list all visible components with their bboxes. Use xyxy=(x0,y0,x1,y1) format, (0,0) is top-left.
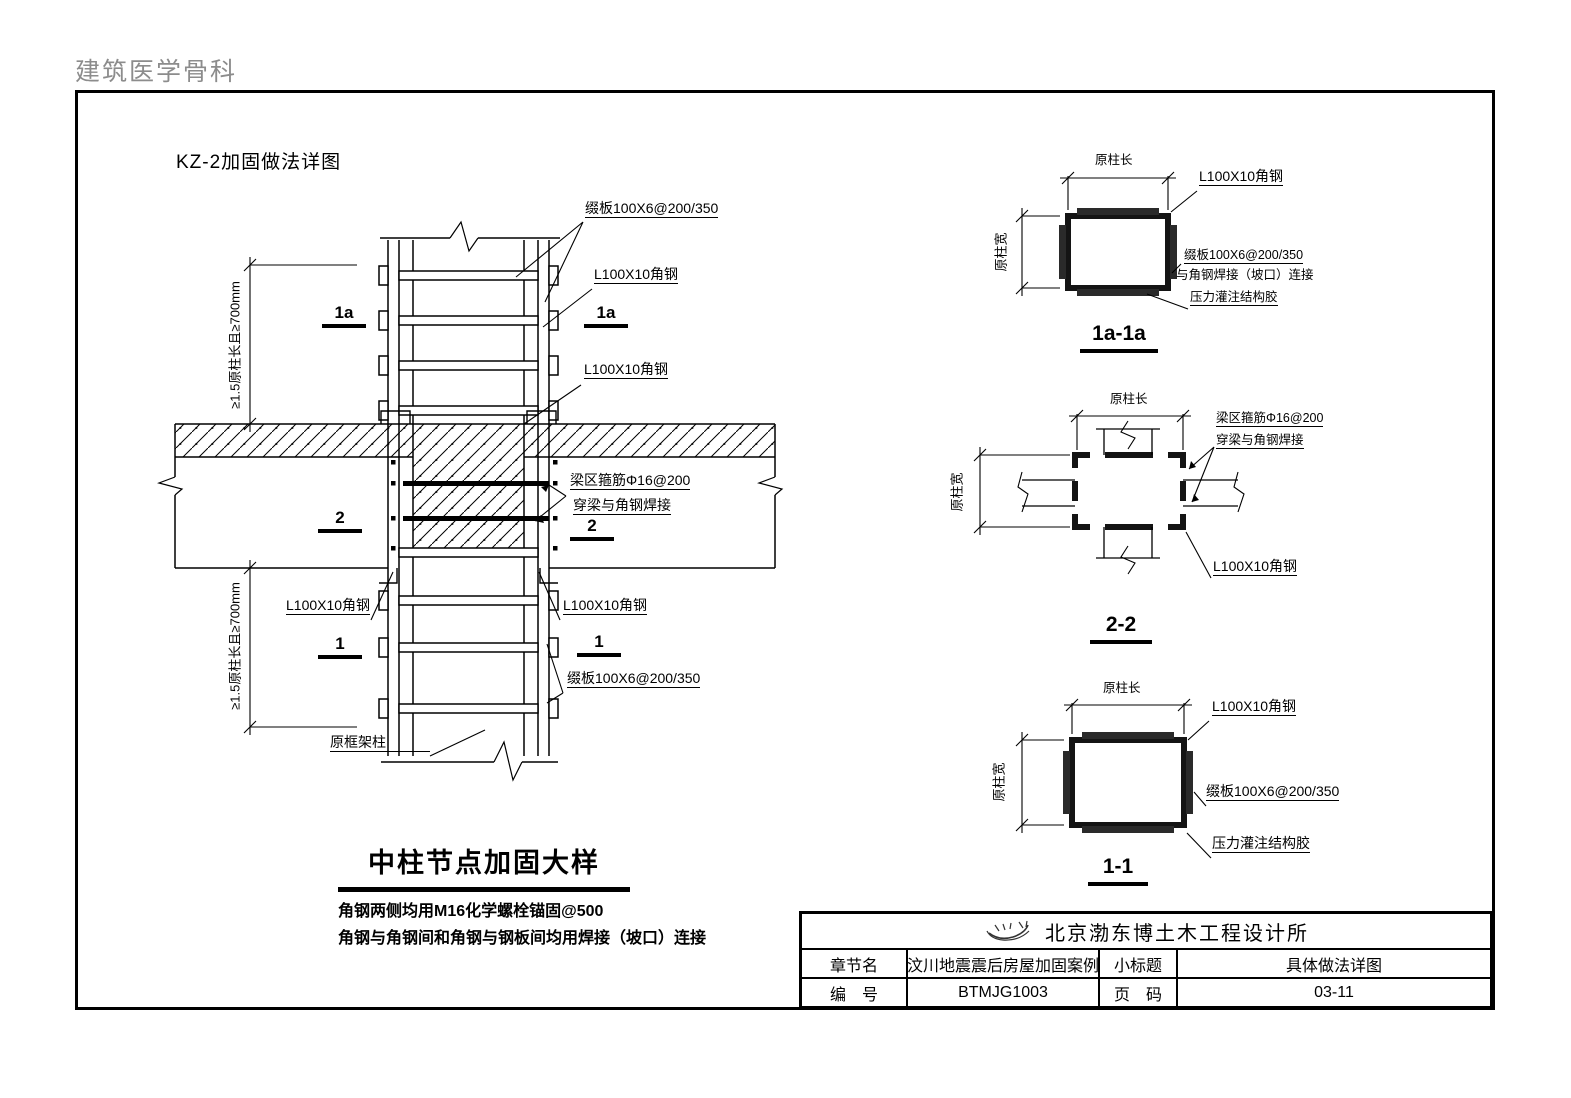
label-angle-below-right: L100X10角钢 xyxy=(563,597,647,615)
note-line-1: 角钢两侧均用M16化学螺栓锚固@500 xyxy=(338,898,706,925)
chapter-label: 章节名 xyxy=(802,950,906,977)
number-value: BTMJG1003 xyxy=(906,979,1098,1006)
title-block: 北京渤东博土木工程设计所 章节名 汶川地震震后房屋加固案例 小标题 具体做法详图… xyxy=(799,911,1493,1009)
page-value: 03-11 xyxy=(1176,979,1490,1006)
label-angle-top-right: L100X10角钢 xyxy=(594,266,678,284)
title-block-row-2: 编 号 BTMJG1003 页 码 03-11 xyxy=(802,977,1490,1006)
s1a-label-glue: 压力灌注结构胶 xyxy=(1190,290,1278,306)
s2-label-angle: L100X10角钢 xyxy=(1213,558,1297,576)
company-logo xyxy=(983,917,1035,945)
s1a-label-batten: 缀板100X6@200/350 xyxy=(1184,248,1303,264)
cut-marker-1a-left: 1a xyxy=(322,303,366,328)
section-title-1-1: 1-1 xyxy=(1088,855,1148,886)
subtitle-label: 小标题 xyxy=(1098,950,1176,977)
s1-label-angle: L100X10角钢 xyxy=(1212,698,1296,716)
s2-dim-top: 原柱长 xyxy=(1110,392,1148,406)
elevation-title-text: 中柱节点加固大样 xyxy=(338,841,630,880)
subtitle-value: 具体做法详图 xyxy=(1176,950,1490,977)
section-title-2-2: 2-2 xyxy=(1090,613,1152,644)
cut-marker-1-left: 1 xyxy=(318,634,362,659)
label-stirrup-line1: 梁区箍筋Φ16@200 xyxy=(570,472,690,490)
title-block-header: 北京渤东博土木工程设计所 xyxy=(802,914,1490,948)
s1-dim-left: 原柱宽 xyxy=(993,762,1008,801)
note-line-2: 角钢与角钢间和角钢与钢板间均用焊接（坡口）连接 xyxy=(338,925,706,952)
cut-marker-2-right: 2 xyxy=(570,516,614,541)
s2-dim-left: 原柱宽 xyxy=(951,472,966,511)
s1-label-glue: 压力灌注结构胶 xyxy=(1212,835,1310,853)
elevation-title: 中柱节点加固大样 xyxy=(338,841,630,892)
s1-label-batten: 缀板100X6@200/350 xyxy=(1206,783,1339,801)
chapter-value: 汶川地震震后房屋加固案例 xyxy=(906,950,1098,977)
cut-marker-2-left: 2 xyxy=(318,508,362,533)
label-angle-mid-right: L100X10角钢 xyxy=(584,361,668,379)
company-name: 北京渤东博土木工程设计所 xyxy=(1045,917,1309,946)
label-batten-bottom: 缀板100X6@200/350 xyxy=(567,670,700,688)
sheet-border xyxy=(75,90,1495,1010)
section-title-1a1a: 1a-1a xyxy=(1080,322,1158,353)
cut-marker-1-right: 1 xyxy=(577,632,621,657)
s2-label-stirrup2: 穿梁与角钢焊接 xyxy=(1216,433,1304,449)
elevation-title-underline xyxy=(338,887,630,892)
dim-lower-text: ≥1.5原柱长且≥700mm xyxy=(229,582,244,710)
title-block-row-1: 章节名 汶川地震震后房屋加固案例 小标题 具体做法详图 xyxy=(802,948,1490,977)
dim-upper-text: ≥1.5原柱长且≥700mm xyxy=(229,281,244,409)
s1a-label-angle: L100X10角钢 xyxy=(1199,168,1283,186)
sheet-title: KZ-2加固做法详图 xyxy=(176,147,341,174)
number-label: 编 号 xyxy=(802,979,906,1006)
cut-marker-1a-right: 1a xyxy=(584,303,628,328)
label-angle-left: L100X10角钢 xyxy=(286,597,370,615)
s1a-dim-left: 原柱宽 xyxy=(995,232,1010,271)
elevation-notes: 角钢两侧均用M16化学螺栓锚固@500 角钢与角钢间和角钢与钢板间均用焊接（坡口… xyxy=(338,898,706,952)
s1a-label-weld: 与角钢焊接（坡口）连接 xyxy=(1176,268,1314,282)
s1-dim-top: 原柱长 xyxy=(1103,681,1141,695)
label-batten-top: 缀板100X6@200/350 xyxy=(585,200,718,218)
label-orig-frame-column: 原框架柱 xyxy=(330,734,430,752)
label-stirrup-line2: 穿梁与角钢焊接 xyxy=(573,497,671,515)
s2-label-stirrup1: 梁区箍筋Φ16@200 xyxy=(1216,411,1323,427)
s1a-dim-top: 原柱长 xyxy=(1095,153,1133,167)
drawing-sheet: 建筑医学骨科 KZ-2加固做法详图 缀板100X6@200/350 L100X1… xyxy=(0,0,1571,1098)
outside-header-text: 建筑医学骨科 xyxy=(75,52,237,88)
page-label: 页 码 xyxy=(1098,979,1176,1006)
